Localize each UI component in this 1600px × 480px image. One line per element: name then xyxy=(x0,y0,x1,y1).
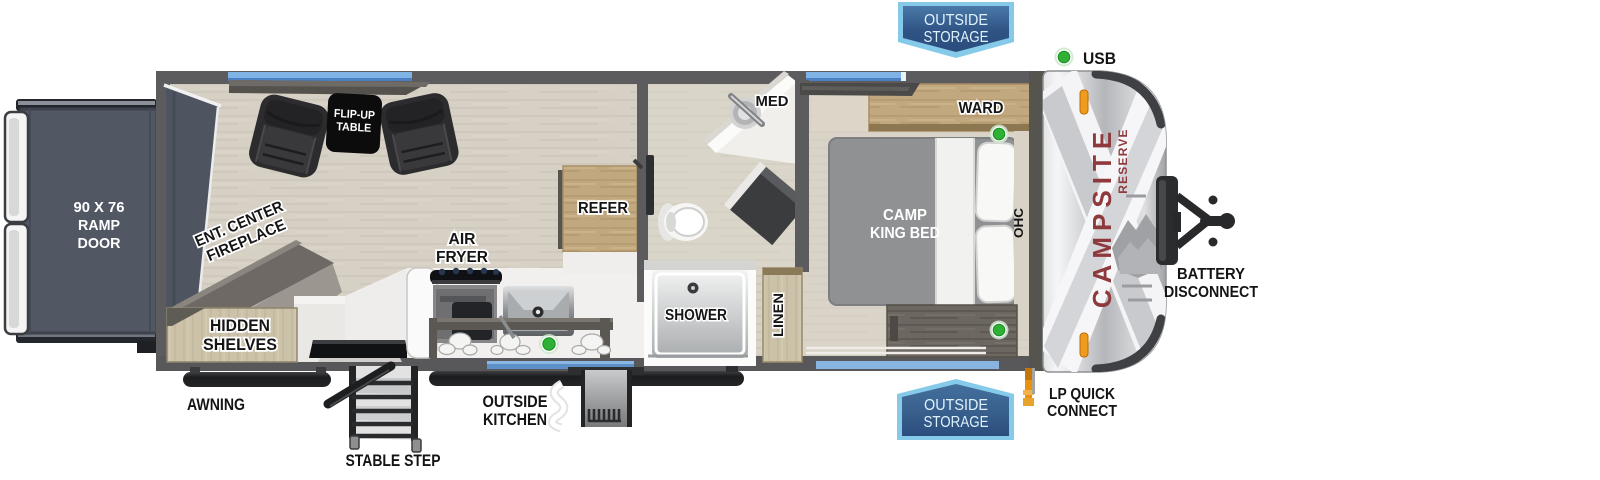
svg-text:CAMP: CAMP xyxy=(883,207,927,224)
svg-text:AIR: AIR xyxy=(449,231,476,248)
svg-text:OUTSIDE: OUTSIDE xyxy=(483,393,548,411)
svg-text:FRYER: FRYER xyxy=(436,249,488,266)
svg-text:USB: USB xyxy=(1083,50,1116,68)
svg-text:CONNECT: CONNECT xyxy=(1047,403,1117,420)
svg-text:DISCONNECT: DISCONNECT xyxy=(1164,284,1258,301)
svg-text:STABLE STEP: STABLE STEP xyxy=(346,452,441,470)
svg-text:RESERVE: RESERVE xyxy=(1116,128,1130,194)
svg-text:DOOR: DOOR xyxy=(78,235,121,252)
svg-text:SHELVES: SHELVES xyxy=(203,336,277,354)
svg-text:FLIP-UP: FLIP-UP xyxy=(334,108,376,122)
svg-text:REFER: REFER xyxy=(578,200,628,217)
svg-text:90 X 76: 90 X 76 xyxy=(74,199,125,216)
svg-text:HIDDEN: HIDDEN xyxy=(210,317,270,335)
svg-text:SHOWER: SHOWER xyxy=(665,307,727,324)
svg-text:MED: MED xyxy=(756,94,789,110)
svg-text:LP QUICK: LP QUICK xyxy=(1049,386,1116,403)
svg-text:RAMP: RAMP xyxy=(78,217,120,234)
svg-text:KITCHEN: KITCHEN xyxy=(483,411,547,429)
svg-text:WARD: WARD xyxy=(959,100,1004,117)
svg-text:STORAGE: STORAGE xyxy=(924,29,989,46)
svg-text:OUTSIDE: OUTSIDE xyxy=(924,12,988,29)
svg-text:CAMPSITE: CAMPSITE xyxy=(1087,126,1117,308)
svg-text:AWNING: AWNING xyxy=(187,396,245,414)
svg-text:BATTERY: BATTERY xyxy=(1177,266,1245,283)
svg-text:STORAGE: STORAGE xyxy=(924,414,989,431)
svg-text:TABLE: TABLE xyxy=(336,121,372,135)
svg-text:KING BED: KING BED xyxy=(870,225,940,242)
svg-text:OUTSIDE: OUTSIDE xyxy=(924,397,988,414)
svg-text:LINEN: LINEN xyxy=(770,293,786,337)
svg-text:OHC: OHC xyxy=(1011,207,1026,238)
